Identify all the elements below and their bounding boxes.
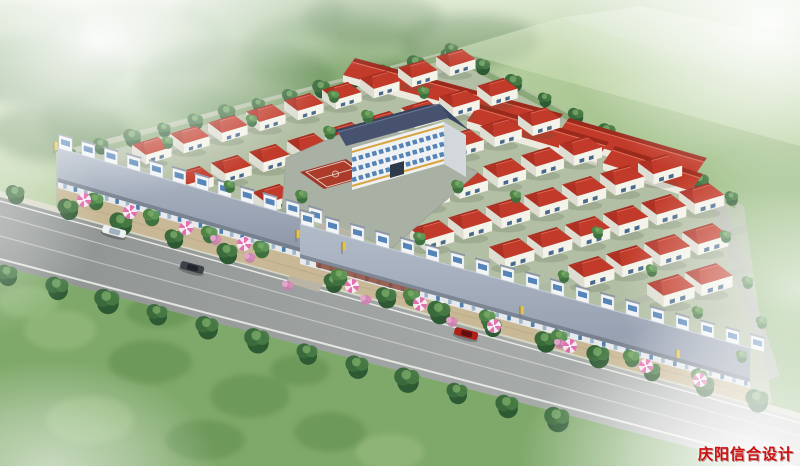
- mist-top-edge: [0, 0, 800, 70]
- aerial-rendering: [0, 0, 800, 466]
- watermark-text: 庆阳信合设计: [698, 443, 794, 464]
- parasol: [413, 297, 427, 311]
- mist-patch: [0, 80, 100, 340]
- parasol: [237, 237, 251, 251]
- parasol: [487, 319, 501, 333]
- mist-patch: [0, 360, 220, 466]
- parasol: [179, 221, 193, 235]
- parasol: [345, 279, 359, 293]
- parasol: [123, 205, 137, 219]
- aerial-rendering-stage: 庆阳信合设计: [0, 0, 800, 466]
